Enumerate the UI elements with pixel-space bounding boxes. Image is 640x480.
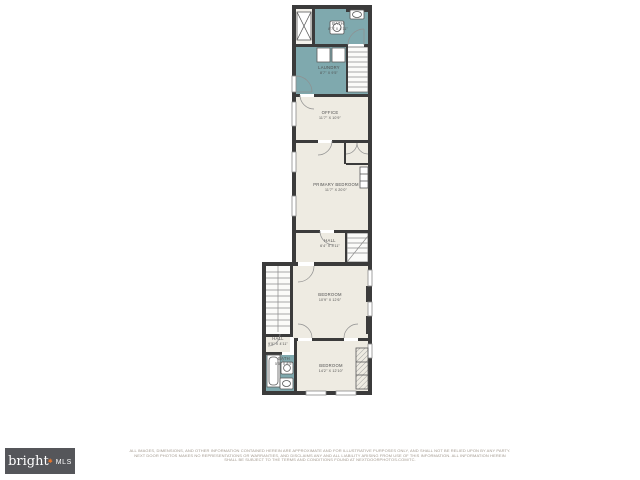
primary-bedroom-label: PRIMARY BEDROOM [313,182,359,187]
logo-wordmark: bright [8,455,49,468]
primary-bedroom-dims: 11'7" X 20'0" [325,188,348,192]
office-label: OFFICE [322,110,339,115]
sink-icon-upper [350,10,364,19]
bedroom-middle-floor [293,266,368,338]
sink-icon-lower [280,378,293,389]
window-bedroom-middle-1 [368,270,372,286]
bath-upper-label: BATH [332,21,344,26]
builtin-shelf-icon [360,167,368,188]
bath-upper-dims: 8'7" X 4'11" [328,27,348,31]
closet-hatched [356,348,368,389]
hall-lower-label: HALL [272,336,284,341]
stairs-hall-upper [347,233,368,262]
window-bedroom-lower-2 [336,391,356,395]
hall-lower-dims: 9'5" X 4'11" [268,342,288,346]
dryer-icon [332,48,345,62]
disclaimer-line-3: SHALL BE SUBJECT TO THE TERMS AND CONDIT… [0,458,640,463]
window-bedroom-lower-1 [306,391,326,395]
logo-star-icon: ✱ [48,458,53,465]
window-office [292,102,296,126]
window-bedroom-lower-side [368,344,372,358]
bright-mls-logo: bright✱MLS [5,448,75,474]
floor-plan: BATH 8'7" X 4'11" LAUNDRY 8'7" X 9'5" OF… [0,0,640,480]
side-entry-opening [292,76,296,92]
logo-suffix: MLS [56,459,72,466]
window-bedroom-middle-2 [368,302,372,316]
hall-upper-label: HALL [324,238,336,243]
bedroom-lower-label: BEDROOM [319,363,343,368]
floor-plan-page: BATH 8'7" X 4'11" LAUNDRY 8'7" X 9'5" OF… [0,0,640,480]
utility-closet-icon [297,12,311,40]
window-primary-1 [292,152,296,172]
washer-icon [317,48,330,62]
bedroom-middle-dims: 10'9" X 12'6" [319,298,342,302]
window-primary-2 [292,196,296,216]
office-dims: 11'7" X 10'9" [319,116,342,120]
laundry-dims: 8'7" X 9'5" [320,71,339,75]
bedroom-lower-dims: 14'2" X 12'10" [319,369,344,373]
stairs-laundry [347,47,368,92]
disclaimer-text: ALL IMAGES, DIMENSIONS, AND OTHER INFORM… [0,449,640,463]
bath-lower-dims: 5'5" X 8'5" [275,362,294,366]
bedroom-middle-label: BEDROOM [318,292,342,297]
bath-lower-label: BATH [278,356,290,361]
laundry-label: LAUNDRY [318,65,340,70]
hall-upper-dims: 6'4" X 3'11" [320,244,340,248]
